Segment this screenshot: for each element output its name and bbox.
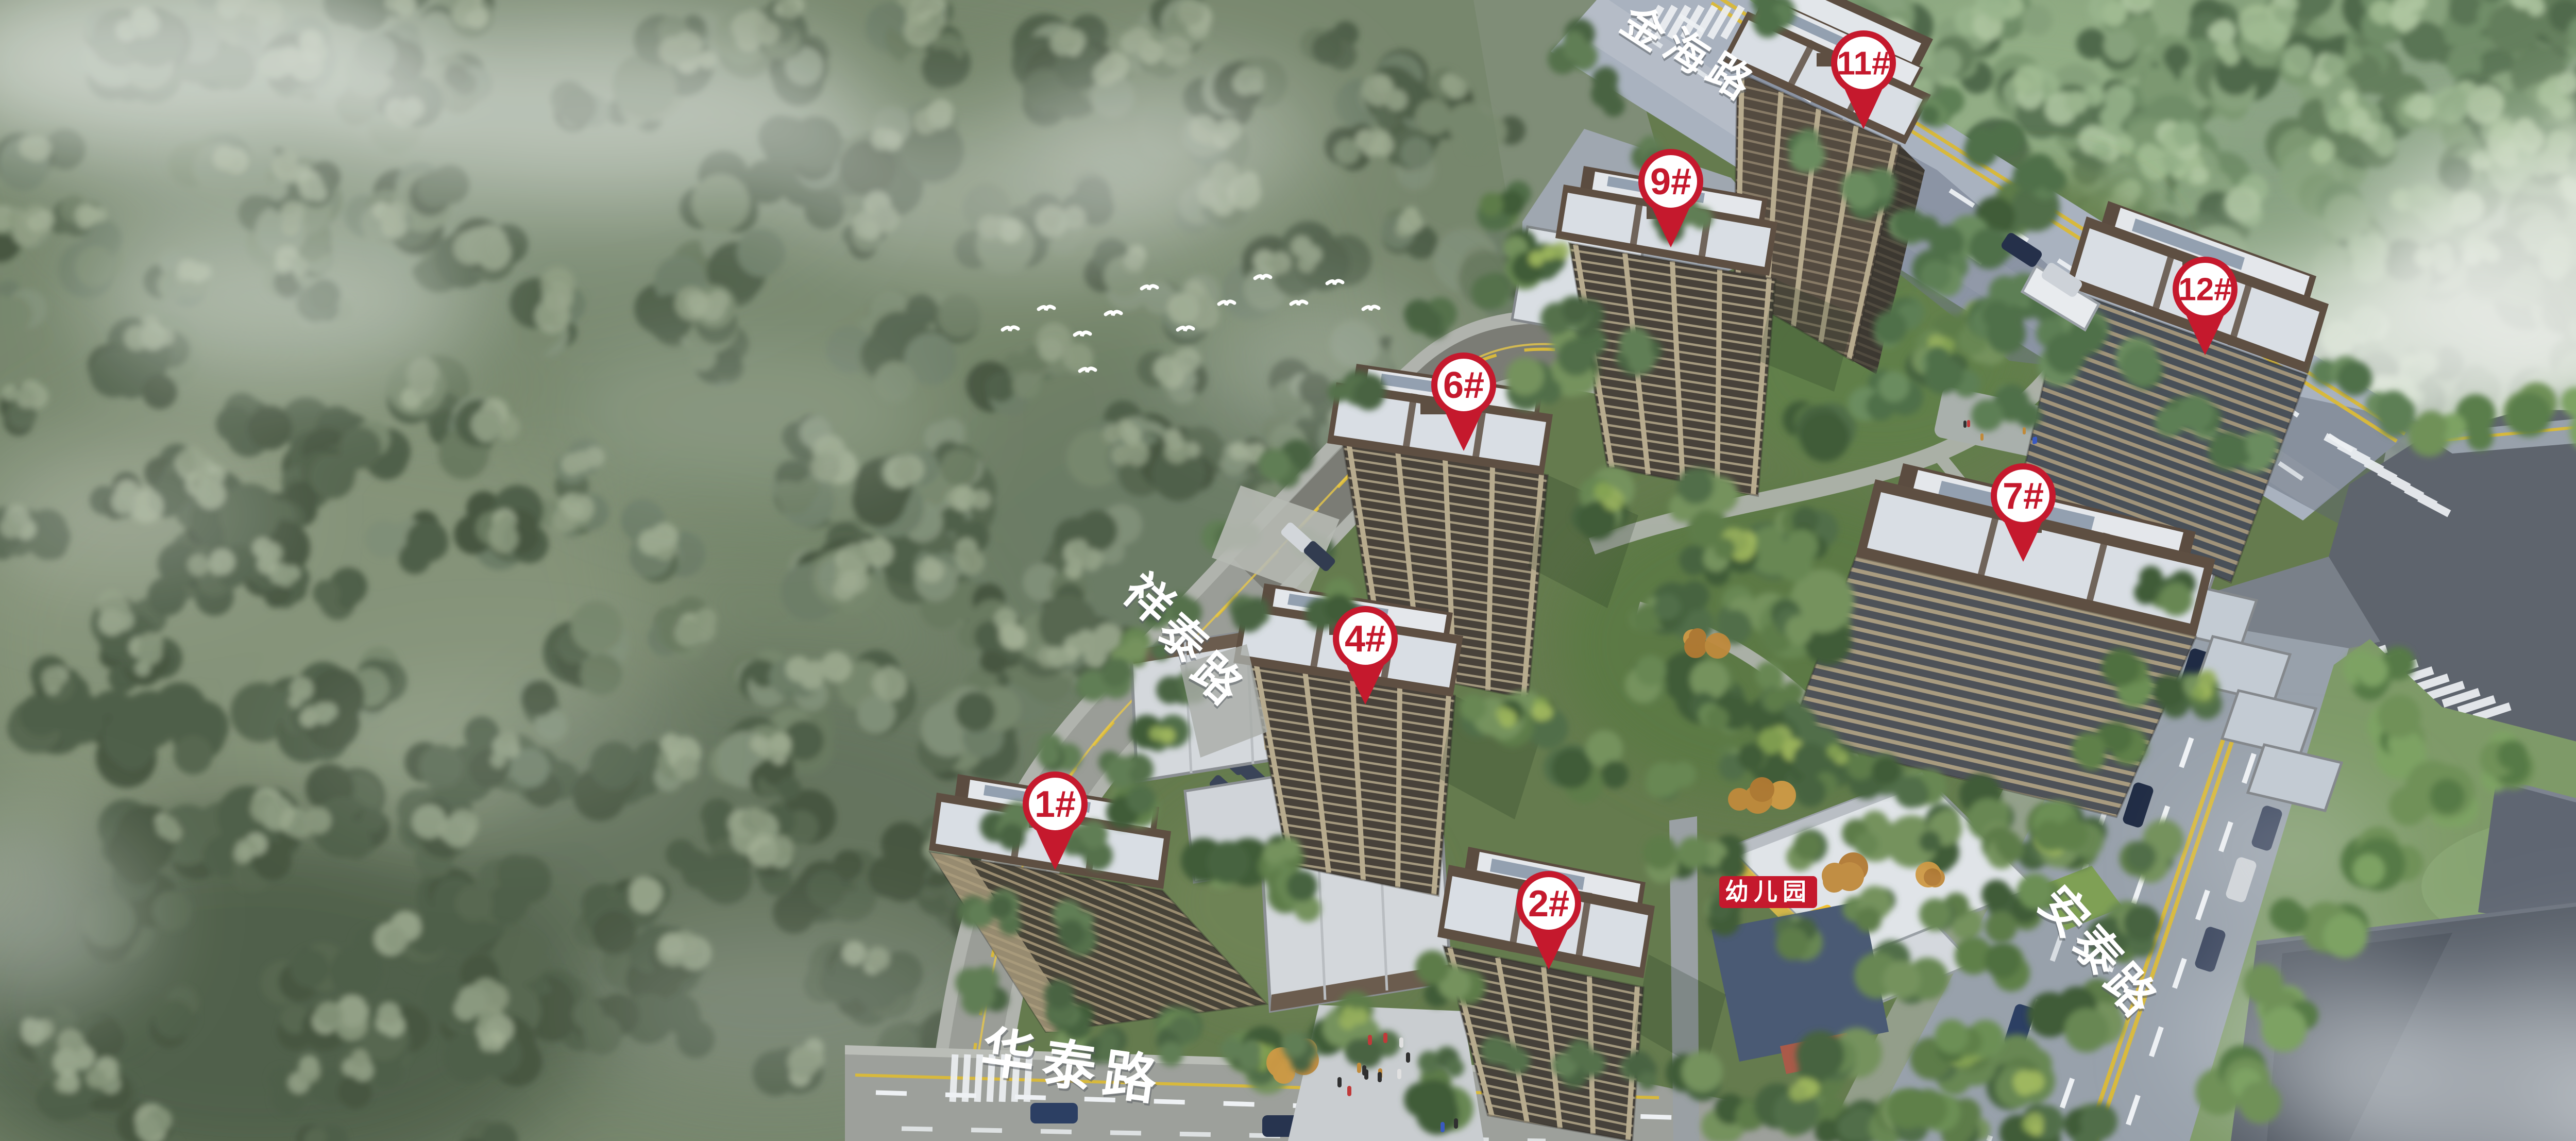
svg-text:华: 华 — [977, 1022, 1039, 1088]
svg-text:幼儿园: 幼儿园 — [1725, 878, 1811, 905]
svg-text:9#: 9# — [1650, 161, 1691, 203]
svg-text:2#: 2# — [1528, 883, 1569, 925]
svg-text:11#: 11# — [1837, 44, 1890, 81]
svg-text:4#: 4# — [1345, 618, 1386, 660]
svg-text:1#: 1# — [1035, 784, 1076, 825]
svg-text:路: 路 — [1099, 1045, 1161, 1111]
svg-text:7#: 7# — [2003, 476, 2044, 517]
svg-text:12#: 12# — [2178, 272, 2231, 308]
svg-text:泰: 泰 — [1038, 1033, 1100, 1100]
svg-text:6#: 6# — [1443, 365, 1484, 406]
